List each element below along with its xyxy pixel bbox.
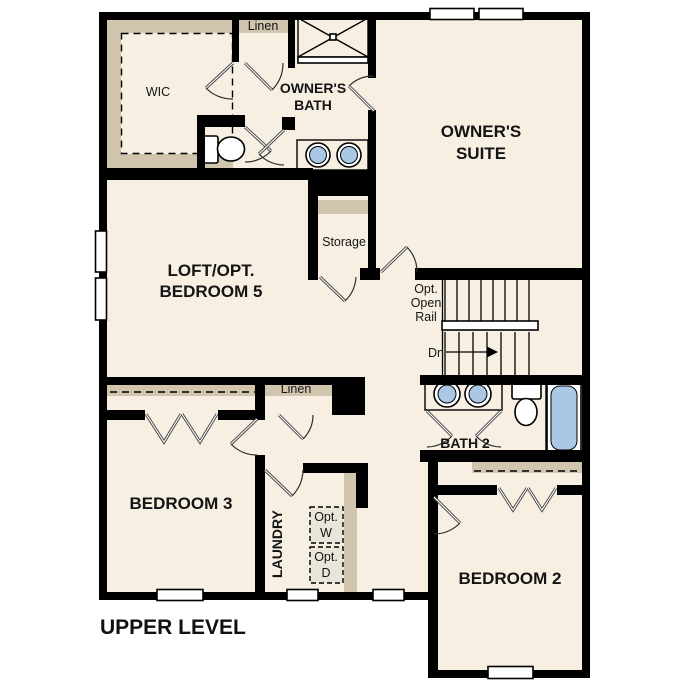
floor-plan-page: WIC Linen OWNER'S BATH OWNER'S SUITE LOF… bbox=[0, 0, 687, 687]
opt-dryer-label-2: D bbox=[321, 566, 330, 580]
laundry-label: LAUNDRY bbox=[269, 509, 285, 578]
wic-label: WIC bbox=[146, 85, 170, 99]
linen-top-label: Linen bbox=[248, 19, 279, 33]
upper-level-title: UPPER LEVEL bbox=[100, 616, 246, 639]
bathtub-icon bbox=[546, 382, 581, 454]
window bbox=[430, 9, 474, 20]
laundry-wall-strip bbox=[344, 470, 357, 592]
floor-plan: WIC Linen OWNER'S BATH OWNER'S SUITE LOF… bbox=[0, 0, 687, 687]
window bbox=[373, 590, 404, 601]
bedroom3-closet bbox=[107, 385, 257, 396]
window bbox=[479, 9, 523, 20]
owners-suite-label-1: OWNER'S bbox=[441, 122, 522, 141]
bedroom3-label: BEDROOM 3 bbox=[130, 494, 233, 513]
window bbox=[96, 278, 107, 320]
window bbox=[157, 590, 203, 601]
down-label: Dn bbox=[428, 346, 444, 360]
bath2-label: BATH 2 bbox=[440, 435, 490, 451]
loft-label-2: BEDROOM 5 bbox=[160, 282, 263, 301]
window bbox=[287, 590, 318, 601]
owners-bath-label-2: BATH bbox=[294, 97, 332, 113]
opt-rail-label-2: Open bbox=[411, 296, 442, 310]
opt-dryer-label-1: Opt. bbox=[314, 550, 338, 564]
storage-label: Storage bbox=[322, 235, 366, 249]
opt-washer-label-2: W bbox=[320, 526, 332, 540]
opt-washer-label-1: Opt. bbox=[314, 510, 338, 524]
owners-bath-label-1: OWNER'S bbox=[280, 80, 346, 96]
owners-suite-label-2: SUITE bbox=[456, 144, 506, 163]
window bbox=[96, 231, 107, 272]
window bbox=[488, 667, 533, 679]
stair-rail bbox=[442, 321, 538, 330]
storage-shelf bbox=[318, 200, 368, 214]
opt-rail-label-3: Rail bbox=[415, 310, 437, 324]
toilet-icon bbox=[203, 136, 245, 163]
opt-rail-label-1: Opt. bbox=[414, 282, 438, 296]
bedroom2-label: BEDROOM 2 bbox=[459, 569, 562, 588]
linen-hall-label: Linen bbox=[281, 382, 312, 396]
loft-label-1: LOFT/OPT. bbox=[168, 261, 255, 280]
